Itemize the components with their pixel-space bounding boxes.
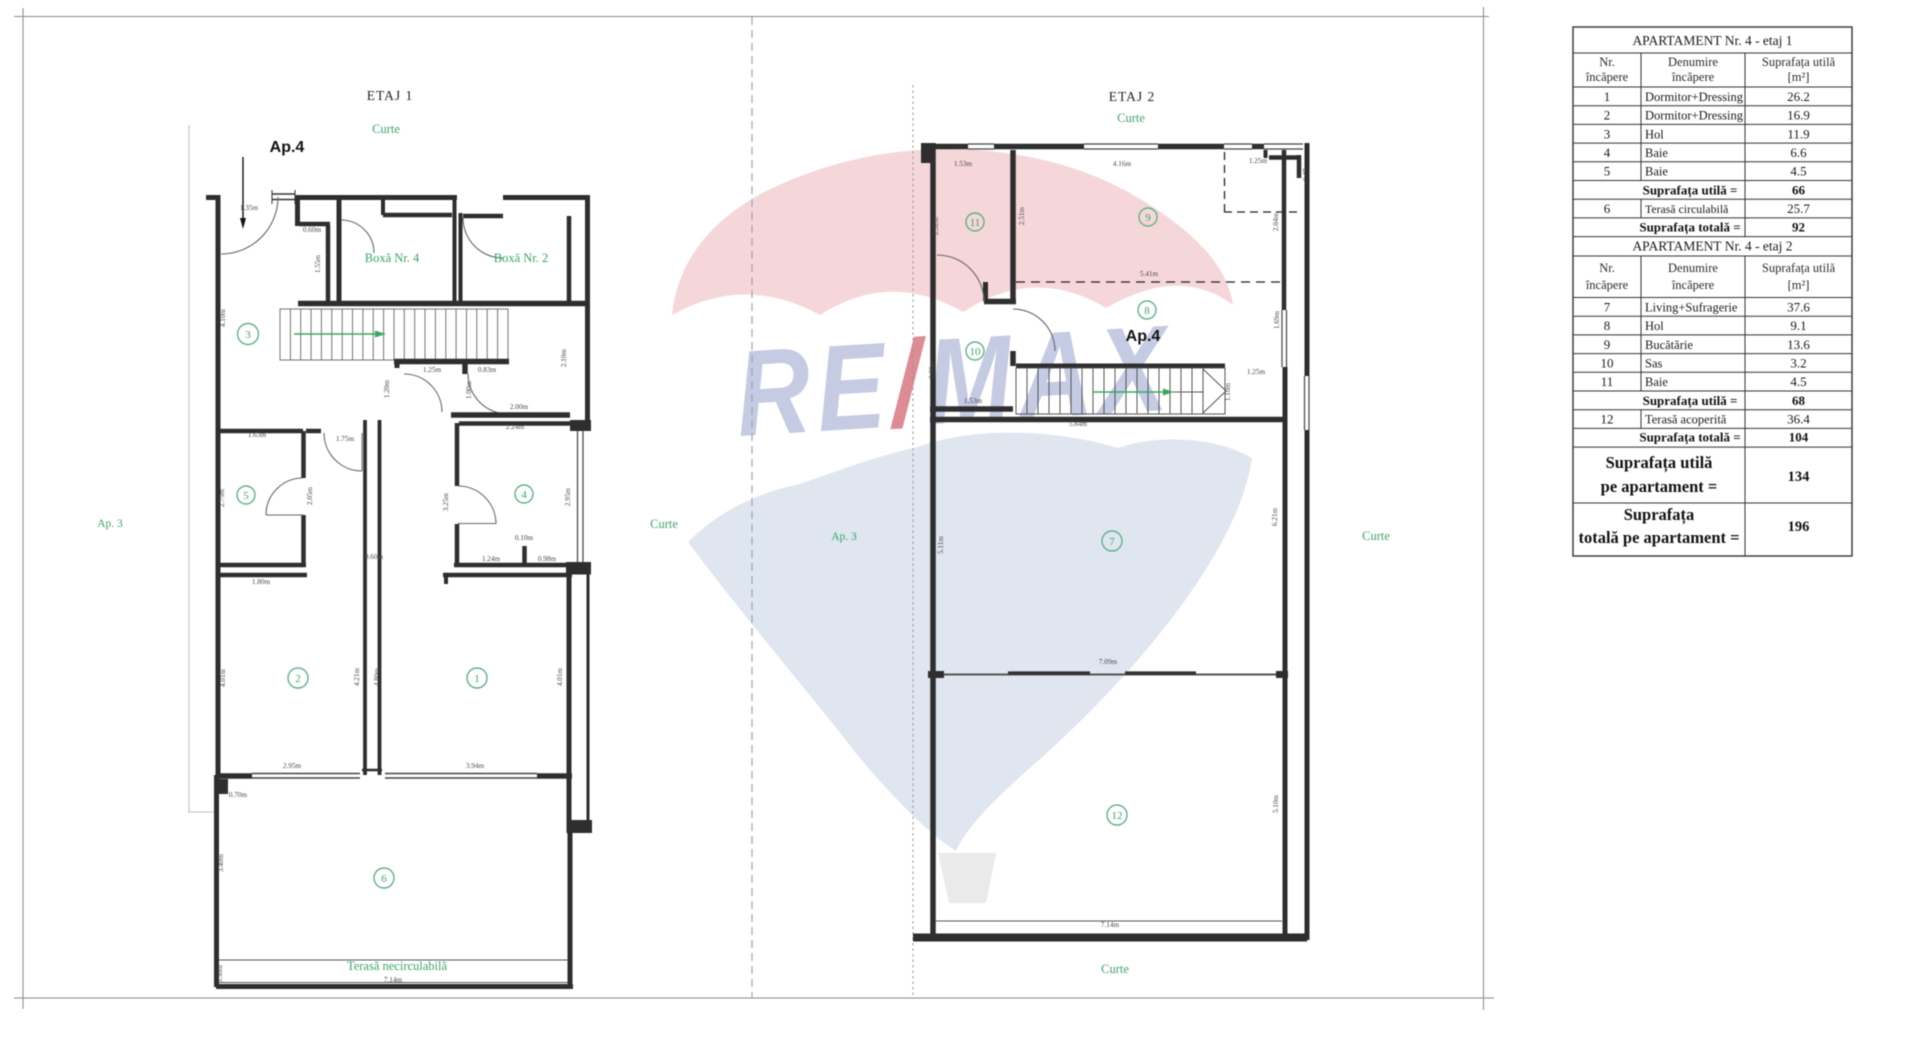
svg-text:0.10m: 0.10m bbox=[515, 534, 534, 542]
svg-text:1.63m: 1.63m bbox=[248, 431, 267, 439]
svg-text:7.14m: 7.14m bbox=[384, 976, 403, 984]
svg-text:7: 7 bbox=[1604, 299, 1611, 314]
svg-text:2: 2 bbox=[295, 673, 301, 685]
svg-text:1.25m: 1.25m bbox=[423, 366, 442, 374]
svg-text:11.9: 11.9 bbox=[1787, 126, 1809, 141]
svg-text:4.01m: 4.01m bbox=[219, 669, 227, 688]
svg-text:5.11m: 5.11m bbox=[937, 536, 945, 554]
svg-text:12: 12 bbox=[1601, 412, 1614, 427]
svg-text:4.16m: 4.16m bbox=[1113, 160, 1132, 168]
svg-text:6.21m: 6.21m bbox=[1271, 508, 1279, 527]
svg-text:1.75m: 1.75m bbox=[336, 435, 355, 443]
svg-text:încăpere: încăpere bbox=[1585, 278, 1629, 292]
svg-text:9.1: 9.1 bbox=[1790, 318, 1806, 333]
svg-text:Suprafața totală =: Suprafața totală = bbox=[1639, 220, 1740, 236]
svg-text:3: 3 bbox=[245, 329, 251, 341]
svg-text:Dormitor+Dressing: Dormitor+Dressing bbox=[1645, 90, 1744, 104]
svg-text:66: 66 bbox=[1792, 183, 1806, 198]
svg-text:3.25m: 3.25m bbox=[442, 493, 450, 512]
svg-text:3.40m: 3.40m bbox=[217, 854, 225, 873]
svg-text:2.00m: 2.00m bbox=[510, 403, 529, 411]
svg-text:1.80m: 1.80m bbox=[252, 578, 271, 586]
svg-text:2.95m: 2.95m bbox=[564, 488, 572, 507]
svg-text:26.2: 26.2 bbox=[1787, 89, 1810, 104]
svg-text:9: 9 bbox=[1604, 337, 1611, 352]
svg-text:0.60m: 0.60m bbox=[365, 553, 384, 561]
svg-text:68: 68 bbox=[1792, 393, 1806, 408]
svg-text:Terasă acoperită: Terasă acoperită bbox=[1645, 413, 1727, 427]
svg-text:4: 4 bbox=[521, 489, 527, 501]
svg-text:10: 10 bbox=[1601, 355, 1614, 370]
svg-text:Baie: Baie bbox=[1645, 165, 1668, 179]
svg-text:Nr.: Nr. bbox=[1599, 55, 1615, 69]
svg-text:Curte: Curte bbox=[1117, 111, 1145, 125]
svg-text:0.50m: 0.50m bbox=[216, 965, 224, 984]
svg-text:7: 7 bbox=[1109, 536, 1115, 548]
svg-text:Ap. 3: Ap. 3 bbox=[831, 531, 857, 543]
svg-text:3.94m: 3.94m bbox=[466, 762, 485, 770]
svg-text:Baie: Baie bbox=[1645, 146, 1668, 160]
svg-text:4.01m: 4.01m bbox=[556, 668, 564, 687]
svg-text:1.25m: 1.25m bbox=[1249, 157, 1268, 165]
svg-text:Suprafața utilă =: Suprafața utilă = bbox=[1643, 393, 1738, 409]
svg-text:5.41m: 5.41m bbox=[1140, 270, 1159, 278]
svg-text:134: 134 bbox=[1788, 469, 1810, 485]
svg-text:12: 12 bbox=[1112, 810, 1123, 822]
svg-text:1.53m: 1.53m bbox=[964, 397, 983, 405]
svg-text:5: 5 bbox=[1604, 164, 1611, 179]
svg-text:37.6: 37.6 bbox=[1787, 299, 1810, 314]
svg-text:Baie: Baie bbox=[1645, 375, 1668, 389]
svg-text:0.83m: 0.83m bbox=[478, 366, 497, 374]
svg-text:Bucătărie: Bucătărie bbox=[1645, 338, 1693, 352]
svg-text:1.25m: 1.25m bbox=[1247, 368, 1266, 376]
svg-text:încăpere: încăpere bbox=[1585, 70, 1629, 84]
svg-text:încăpere: încăpere bbox=[1671, 278, 1715, 292]
svg-text:4.5: 4.5 bbox=[1790, 164, 1806, 179]
svg-text:7.09m: 7.09m bbox=[1099, 658, 1118, 666]
svg-text:9: 9 bbox=[1145, 212, 1151, 224]
svg-text:Curte: Curte bbox=[1101, 962, 1129, 976]
svg-text:Suprafața utilă: Suprafața utilă bbox=[1762, 261, 1836, 275]
svg-text:4.5: 4.5 bbox=[1790, 374, 1806, 389]
svg-text:Ap.4: Ap.4 bbox=[1126, 328, 1161, 345]
svg-text:1.55m: 1.55m bbox=[314, 255, 322, 274]
svg-text:4.21m: 4.21m bbox=[353, 668, 361, 687]
svg-text:RE/MAX: RE/MAX bbox=[732, 299, 1177, 462]
svg-text:13.6: 13.6 bbox=[1787, 337, 1810, 352]
svg-text:5.10m: 5.10m bbox=[1272, 795, 1280, 814]
svg-text:1.20m: 1.20m bbox=[383, 380, 391, 399]
svg-text:25.7: 25.7 bbox=[1787, 201, 1810, 216]
svg-text:pe apartament =: pe apartament = bbox=[1601, 477, 1718, 496]
svg-text:92: 92 bbox=[1792, 220, 1805, 235]
svg-text:2.04m: 2.04m bbox=[1272, 213, 1280, 232]
svg-text:Curte: Curte bbox=[650, 517, 678, 531]
svg-text:2.95m: 2.95m bbox=[283, 762, 302, 770]
svg-text:totală pe apartament =: totală pe apartament = bbox=[1578, 528, 1739, 547]
svg-text:2.05m: 2.05m bbox=[306, 487, 314, 506]
svg-text:3.2: 3.2 bbox=[1790, 355, 1806, 370]
svg-text:4: 4 bbox=[1604, 145, 1611, 160]
svg-text:1.10m: 1.10m bbox=[1224, 383, 1232, 402]
svg-text:[m²]: [m²] bbox=[1788, 70, 1810, 84]
svg-text:Denumire: Denumire bbox=[1668, 261, 1718, 275]
svg-text:7.14m: 7.14m bbox=[1101, 921, 1120, 929]
svg-text:8: 8 bbox=[1604, 318, 1611, 333]
svg-text:Terasă necirculabilă: Terasă necirculabilă bbox=[347, 959, 448, 973]
svg-text:2.92m: 2.92m bbox=[932, 217, 940, 236]
svg-text:2.30m: 2.30m bbox=[928, 361, 936, 380]
svg-text:0.98m: 0.98m bbox=[538, 555, 557, 563]
svg-text:Curte: Curte bbox=[372, 122, 400, 136]
svg-text:1: 1 bbox=[1604, 89, 1611, 104]
svg-text:Suprafața: Suprafața bbox=[1624, 505, 1695, 525]
svg-text:0.70m: 0.70m bbox=[229, 791, 248, 799]
svg-text:încăpere: încăpere bbox=[1671, 70, 1715, 84]
svg-text:5: 5 bbox=[243, 490, 249, 502]
svg-text:1.24m: 1.24m bbox=[482, 555, 501, 563]
svg-text:4.80m: 4.80m bbox=[373, 668, 381, 687]
svg-text:APARTAMENT Nr. 4 - etaj 2: APARTAMENT Nr. 4 - etaj 2 bbox=[1632, 239, 1792, 254]
svg-text:[m²]: [m²] bbox=[1788, 278, 1810, 292]
svg-text:APARTAMENT Nr. 4 - etaj 1: APARTAMENT Nr. 4 - etaj 1 bbox=[1632, 33, 1792, 48]
svg-text:16.9: 16.9 bbox=[1787, 108, 1810, 123]
svg-text:1.69m: 1.69m bbox=[1273, 311, 1281, 330]
svg-text:Curte: Curte bbox=[1362, 529, 1390, 543]
svg-text:Sas: Sas bbox=[1645, 356, 1663, 370]
svg-text:Hol: Hol bbox=[1645, 319, 1664, 333]
svg-text:6: 6 bbox=[381, 873, 387, 885]
svg-text:2.10m: 2.10m bbox=[560, 349, 568, 368]
svg-text:10: 10 bbox=[970, 346, 982, 358]
svg-text:ETAJ 1: ETAJ 1 bbox=[367, 88, 414, 103]
svg-text:Nr.: Nr. bbox=[1599, 261, 1615, 275]
svg-text:Hol: Hol bbox=[1645, 127, 1664, 141]
svg-text:2.24m: 2.24m bbox=[506, 423, 525, 431]
svg-text:196: 196 bbox=[1788, 519, 1810, 535]
svg-text:11: 11 bbox=[970, 217, 981, 229]
svg-text:Boxă Nr. 2: Boxă Nr. 2 bbox=[494, 251, 549, 265]
svg-text:8: 8 bbox=[1144, 305, 1150, 317]
svg-text:Denumire: Denumire bbox=[1668, 55, 1718, 69]
svg-text:Ap. 3: Ap. 3 bbox=[97, 518, 123, 530]
svg-text:ETAJ 2: ETAJ 2 bbox=[1109, 89, 1156, 104]
svg-text:2.75m: 2.75m bbox=[218, 489, 226, 508]
svg-text:3: 3 bbox=[1604, 126, 1611, 141]
svg-text:6.6: 6.6 bbox=[1790, 145, 1807, 160]
svg-text:Suprafața utilă: Suprafața utilă bbox=[1762, 55, 1836, 69]
svg-text:Terasă circulabilă: Terasă circulabilă bbox=[1645, 202, 1729, 216]
svg-text:1.35m: 1.35m bbox=[240, 204, 259, 212]
svg-text:36.4: 36.4 bbox=[1787, 412, 1810, 427]
svg-text:Suprafața utilă: Suprafața utilă bbox=[1606, 453, 1713, 473]
svg-text:Boxă Nr. 4: Boxă Nr. 4 bbox=[365, 251, 420, 265]
svg-text:1.53m: 1.53m bbox=[954, 160, 973, 168]
svg-text:11: 11 bbox=[1601, 374, 1614, 389]
svg-text:104: 104 bbox=[1789, 430, 1809, 445]
svg-text:Suprafața utilă =: Suprafața utilă = bbox=[1643, 183, 1738, 199]
svg-text:Living+Sufragerie: Living+Sufragerie bbox=[1645, 300, 1738, 314]
svg-text:Ap.4: Ap.4 bbox=[270, 139, 305, 156]
svg-text:Dormitor+Dressing: Dormitor+Dressing bbox=[1645, 109, 1744, 123]
svg-text:2.51m: 2.51m bbox=[1018, 207, 1026, 226]
svg-text:2: 2 bbox=[1604, 108, 1611, 123]
svg-text:Suprafața totală =: Suprafața totală = bbox=[1639, 430, 1740, 446]
svg-text:6: 6 bbox=[1604, 201, 1611, 216]
svg-text:0.60m: 0.60m bbox=[303, 226, 322, 234]
svg-text:4.10m: 4.10m bbox=[219, 309, 227, 328]
svg-text:1: 1 bbox=[474, 673, 480, 685]
